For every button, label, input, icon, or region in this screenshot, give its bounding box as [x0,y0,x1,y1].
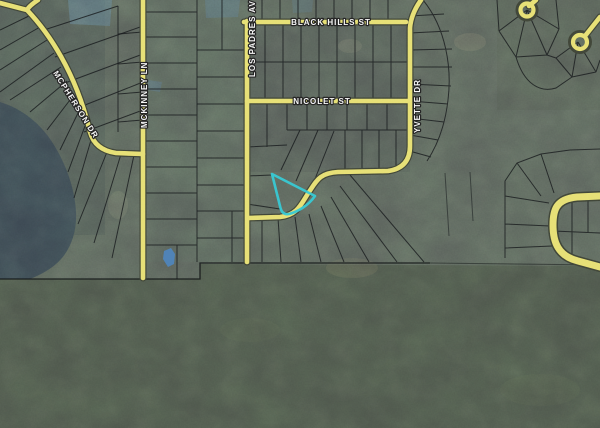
cleared-patch [500,374,580,406]
street-label-black-hills: BLACK HILLS ST [291,18,371,27]
map-viewport[interactable]: BLACK HILLS ST NICOLET ST LOS PADRES AV … [0,0,600,428]
street-label-los-padres: LOS PADRES AV [248,0,257,77]
forest-area [0,264,600,428]
cleared-patch [220,318,280,342]
cleared-patch [338,39,362,53]
street-label-yvette: YVETTE DR [413,79,422,133]
satellite-map: BLACK HILLS ST NICOLET ST LOS PADRES AV … [0,0,600,428]
terrain-layer [0,0,600,428]
blue-lot-patch [292,0,313,13]
street-label-mckinney: MCKINNEY LN [140,62,149,128]
street-label-nicolet: NICOLET ST [293,97,351,106]
cleared-patch [454,33,486,51]
cleared-patch [326,258,378,278]
blue-lot-patch [148,80,162,92]
blue-lot-patch [68,0,112,26]
